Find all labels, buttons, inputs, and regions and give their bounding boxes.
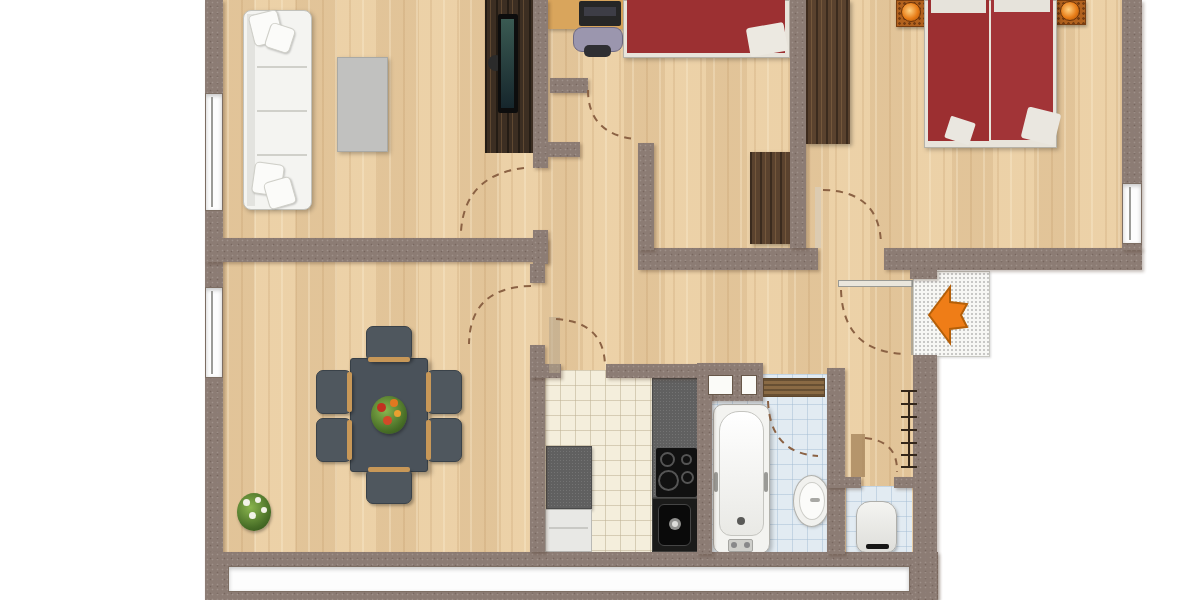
bouquet-flower <box>383 416 392 425</box>
bedroom-right-door-leaf <box>815 187 821 248</box>
wall-corridor-top-left <box>638 248 818 270</box>
bed-pillow-left <box>931 0 986 13</box>
tub-faucet-knob <box>731 542 737 548</box>
entrance-threshold <box>911 280 913 355</box>
plant-flower <box>261 507 267 513</box>
vent-shaft <box>741 375 757 395</box>
lamp-left <box>901 2 921 22</box>
wardrobe-small <box>750 152 792 244</box>
burner <box>660 452 675 467</box>
chair-armrest <box>368 467 410 472</box>
plant-flower <box>249 512 256 519</box>
office-chair-base <box>584 45 611 57</box>
wall-living-right-upper <box>533 0 548 168</box>
wall-corridor-top-right <box>884 248 1142 270</box>
entrance-mat <box>913 271 990 357</box>
bouquet-flower <box>377 403 386 412</box>
window-bottom-band <box>228 566 910 592</box>
burner <box>658 470 679 491</box>
plant-flower <box>243 499 250 506</box>
wall-bedroom-door-stub <box>550 78 588 93</box>
tub-drain <box>737 517 745 525</box>
wall-bedrooms-divider <box>790 0 806 248</box>
wc-door-leaf <box>851 434 865 477</box>
chair-armrest <box>347 420 352 460</box>
chair-armrest <box>426 420 431 460</box>
chair-armrest <box>426 372 431 412</box>
wardrobe-large <box>806 0 850 144</box>
chair-armrest <box>347 372 352 412</box>
coffee-table <box>337 57 388 152</box>
kitchen-faucet-dot <box>672 521 678 527</box>
wall-entry-stub <box>910 270 937 279</box>
burner <box>681 454 692 465</box>
bed-pillow-right <box>994 0 1050 12</box>
table-bouquet <box>371 396 407 434</box>
sofa-cushion-seam <box>257 66 307 68</box>
wall-bedroom-return <box>548 142 580 157</box>
wash-basin-tap <box>810 498 820 502</box>
kitchen-counter-left <box>546 446 592 509</box>
wall-wc-top-left <box>827 477 861 488</box>
tub-handle <box>714 472 718 492</box>
window-left-upper <box>205 93 223 211</box>
wall-bath-right <box>827 368 845 554</box>
dining-chair-bottom <box>366 468 412 504</box>
kitchen-door-leaf <box>549 317 560 373</box>
wall-living-dining-divider <box>205 238 548 262</box>
tub-handle <box>764 472 768 492</box>
chair-armrest <box>368 357 410 362</box>
bouquet-flower <box>390 399 398 407</box>
toilet-slot <box>866 544 889 549</box>
dishwasher <box>545 509 592 552</box>
wall-hall-right <box>913 355 937 600</box>
window-right <box>1122 183 1142 244</box>
wall-kitchen-top-right <box>606 364 698 378</box>
sofa-cushion-seam <box>257 110 307 112</box>
plant-flower <box>255 497 261 503</box>
window-pane <box>211 291 213 374</box>
wall-bedroom-side <box>638 143 654 250</box>
dining-chair-right-1 <box>426 370 462 414</box>
wall-dining-door-stub <box>530 264 545 283</box>
floor-plan <box>0 0 1200 600</box>
window-pane <box>1129 187 1131 240</box>
window-pane <box>211 97 213 207</box>
tv-screen <box>501 19 514 108</box>
sofa-cushion-seam <box>257 154 307 156</box>
window-left-lower <box>205 287 223 378</box>
bouquet-flower <box>394 410 401 417</box>
wall-kitchen-bath <box>697 377 712 554</box>
wall-wc-top-right <box>894 477 913 488</box>
wall-living-right-lower <box>533 230 548 264</box>
burner <box>681 471 694 484</box>
vent-shaft <box>708 375 733 395</box>
laptop-keyboard <box>584 7 616 16</box>
entrance-door-leaf <box>838 280 913 287</box>
bathroom-door-leaf <box>763 378 825 397</box>
lamp-right <box>1060 1 1080 21</box>
dining-chair-right-2 <box>426 418 462 462</box>
tub-faucet-knob <box>744 542 750 548</box>
dishwasher-seam <box>549 527 588 529</box>
